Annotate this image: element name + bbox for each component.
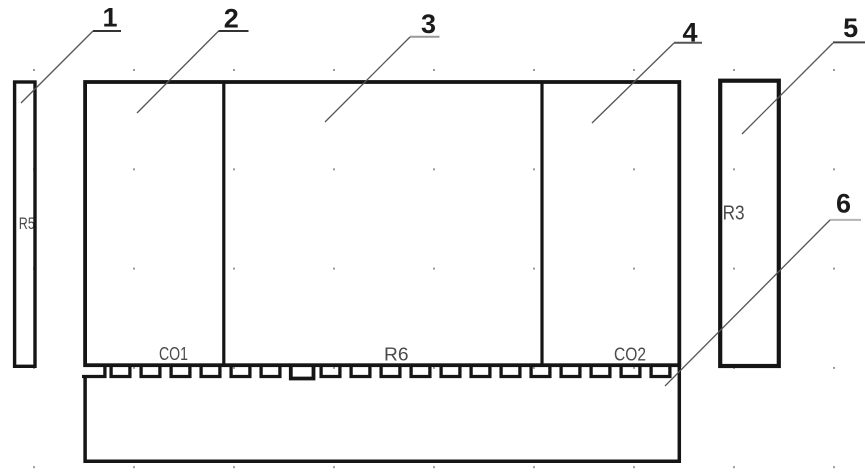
svg-text:5: 5 (843, 13, 858, 43)
svg-text:2: 2 (224, 4, 239, 34)
svg-text:3: 3 (421, 9, 436, 39)
svg-text:R5: R5 (19, 214, 35, 233)
svg-text:6: 6 (836, 189, 851, 219)
svg-text:CO1: CO1 (159, 344, 188, 364)
svg-text:1: 1 (102, 3, 117, 33)
svg-text:R6: R6 (384, 343, 409, 364)
svg-text:R3: R3 (723, 203, 745, 225)
svg-text:CO2: CO2 (614, 344, 646, 365)
